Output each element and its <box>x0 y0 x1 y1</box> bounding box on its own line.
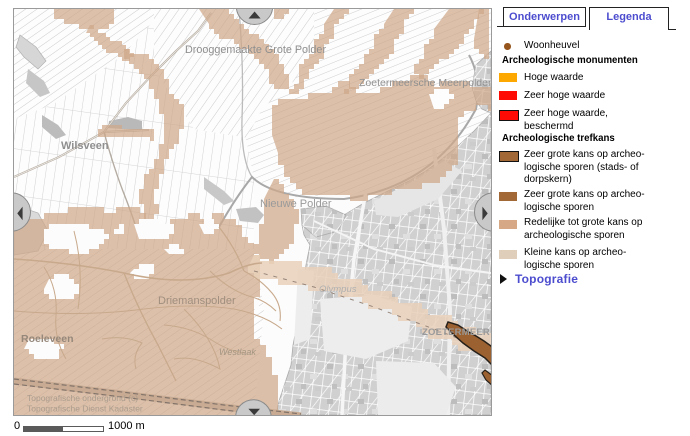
svg-text:Topografische ondergrond (c): Topografische ondergrond (c) <box>27 393 138 403</box>
svg-text:ZOETERMEER: ZOETERMEER <box>422 327 490 338</box>
svg-text:Olympus: Olympus <box>319 284 357 295</box>
svg-text:Wilsveen: Wilsveen <box>61 140 109 152</box>
svg-text:Nieuwe Polder: Nieuwe Polder <box>260 198 332 210</box>
svg-text:Westlaak: Westlaak <box>219 347 256 357</box>
svg-text:Zoetermeersche Meerpolder: Zoetermeersche Meerpolder <box>359 77 491 89</box>
svg-text:Drooggemaakte Grote Polder: Drooggemaakte Grote Polder <box>185 44 326 56</box>
svg-text:Driemanspolder: Driemanspolder <box>158 295 236 307</box>
svg-text:Topografische Dienst Kadaster: Topografische Dienst Kadaster <box>27 404 143 414</box>
svg-text:Roeleveen: Roeleveen <box>21 333 74 345</box>
